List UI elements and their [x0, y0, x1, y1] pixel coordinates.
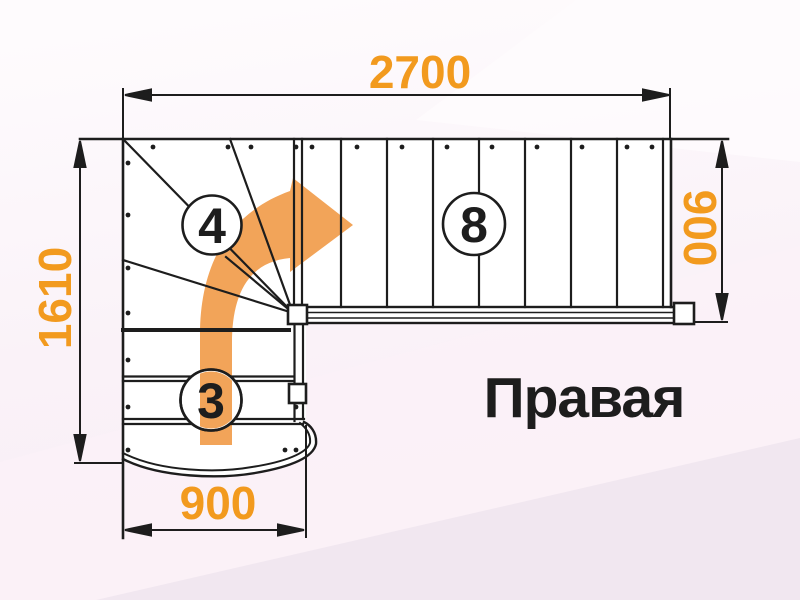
arrowhead-left: [125, 525, 151, 536]
fastener-dot: [126, 161, 131, 166]
fastener-dot: [294, 405, 299, 410]
stair-plan-drawing: 2700 1610 900 900 4 8 3 Правая: [0, 0, 800, 600]
fastener-dot: [310, 145, 315, 150]
arrowhead-right: [643, 90, 669, 101]
fastener-dot: [625, 145, 630, 150]
fastener-dot: [126, 311, 131, 316]
fastener-dot: [400, 145, 405, 150]
fastener-dot: [126, 448, 131, 453]
fastener-dot: [126, 358, 131, 363]
fastener-dot: [151, 145, 156, 150]
dimension-bottom-label: 900: [180, 477, 257, 529]
dimension-right-label: 900: [674, 190, 726, 267]
fastener-dot: [535, 145, 540, 150]
fastener-dot: [294, 145, 299, 150]
dimension-top-label: 2700: [369, 46, 471, 98]
fastener-dot: [283, 448, 288, 453]
stair-orientation-caption: Правая: [484, 366, 685, 430]
fastener-dot: [490, 145, 495, 150]
fastener-dot: [226, 145, 231, 150]
winder-count-label: 4: [198, 198, 226, 254]
dimension-left-label: 1610: [29, 247, 81, 349]
arrowhead-down: [75, 435, 86, 461]
dimension-left: [74, 141, 123, 463]
fastener-dot: [650, 145, 655, 150]
fastener-dot: [445, 145, 450, 150]
arrowhead-up: [717, 141, 728, 167]
upper-flight-count-label: 8: [460, 197, 488, 253]
fastener-dot: [294, 448, 299, 453]
fastener-dot: [355, 145, 360, 150]
fastener-dot: [126, 266, 131, 271]
fastener-dot: [126, 405, 131, 410]
arrowhead-up: [75, 141, 86, 167]
fastener-dot: [580, 145, 585, 150]
stair-plan-page: 2700 1610 900 900 4 8 3 Правая: [0, 0, 800, 600]
fastener-dot: [126, 213, 131, 218]
corner-post: [288, 305, 307, 324]
arrowhead-left: [125, 90, 151, 101]
arrowhead-down: [717, 294, 728, 320]
arrowhead-right: [278, 525, 304, 536]
fastener-dot: [249, 145, 254, 150]
right-post: [674, 303, 694, 324]
lower-flight-count-label: 3: [197, 373, 225, 429]
lower-post: [289, 384, 306, 403]
